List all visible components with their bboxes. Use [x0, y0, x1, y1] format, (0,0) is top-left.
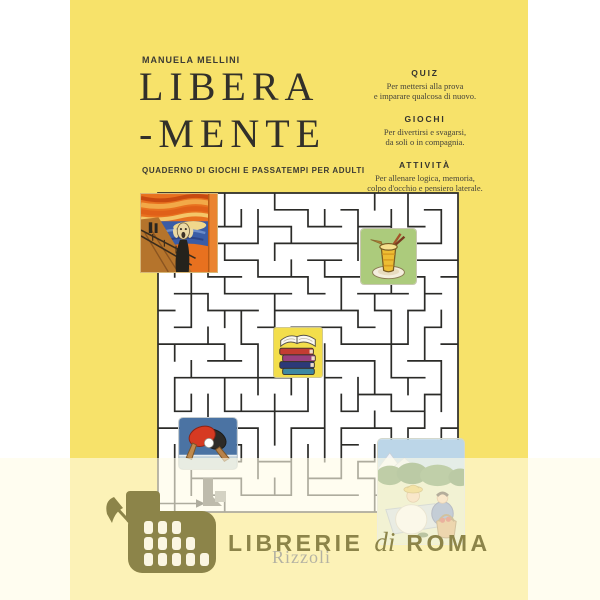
- watermark-roma: ROMA: [406, 530, 490, 557]
- book-subtitle: QUADERNO DI GIOCHI E PASSATEMPI PER ADUL…: [142, 166, 365, 175]
- watermark-di: di: [374, 527, 395, 558]
- book-cover-product-image: MANUELA MELLINI LIBERA -MENTE QUADERNO D…: [0, 0, 600, 600]
- ice-cream-sundae: [360, 228, 417, 285]
- feature-list: QUIZ Per mettersi alla prova e imparare …: [350, 68, 500, 206]
- the-scream-painting: [140, 193, 218, 273]
- watermark-librerie: LIBRERIE: [228, 530, 363, 557]
- feature-quiz: QUIZ Per mettersi alla prova e imparare …: [350, 68, 500, 101]
- watermark-text: LIBRERIE di ROMA: [228, 527, 491, 558]
- colosseum-icon: [100, 487, 218, 575]
- book-title-line1: LIBERA: [139, 67, 319, 107]
- book-title-line2: -MENTE: [139, 114, 326, 154]
- feature-giochi: GIOCHI Per divertirsi e svagarsi, da sol…: [350, 114, 500, 147]
- stack-of-books: [273, 327, 323, 378]
